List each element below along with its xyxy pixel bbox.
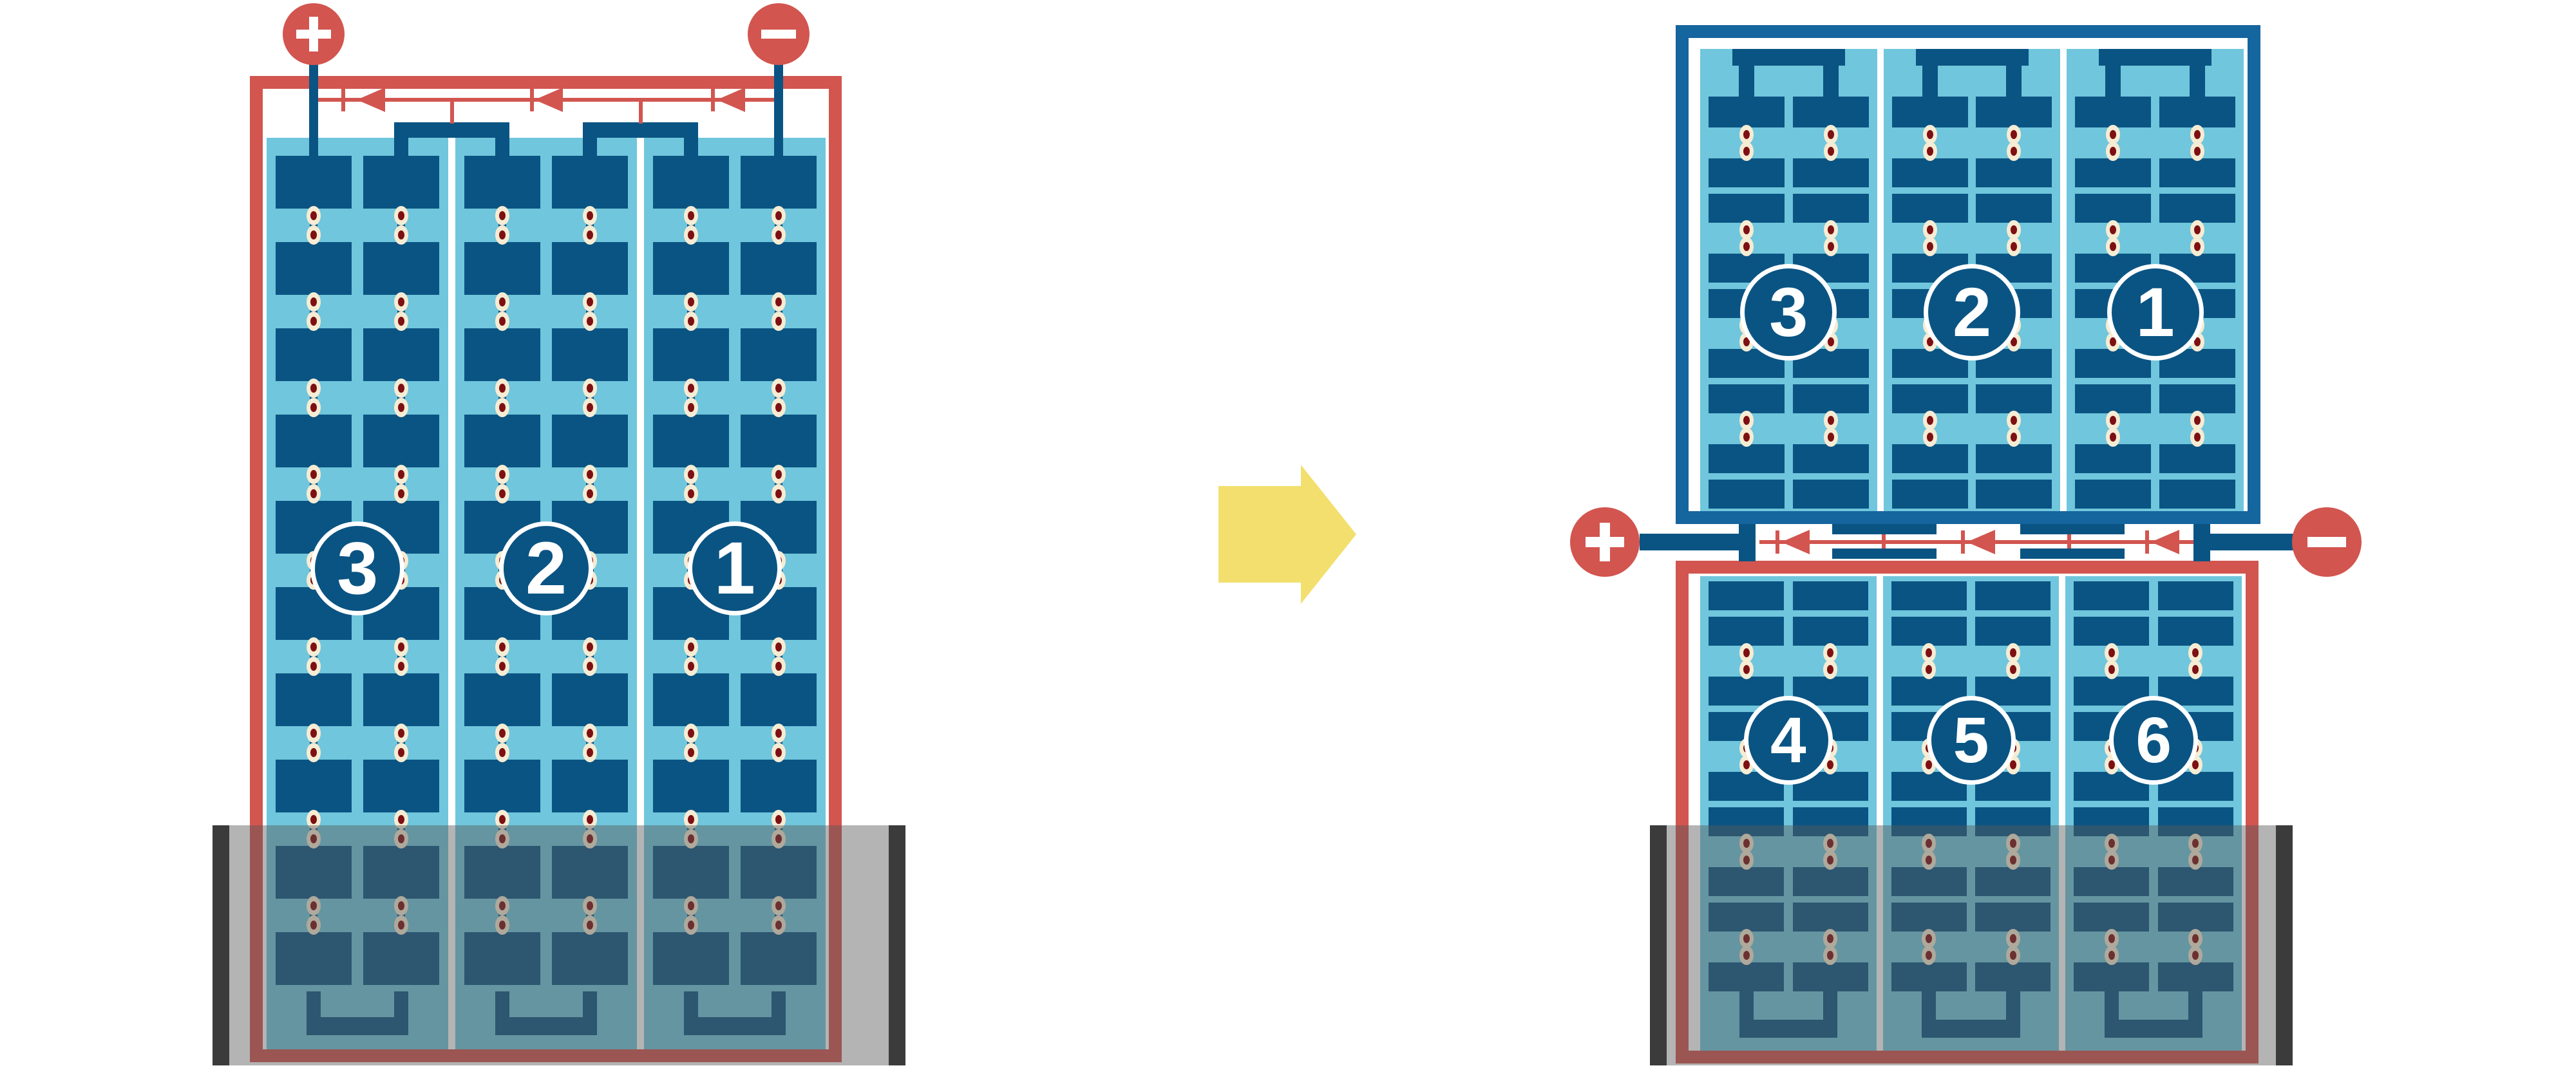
flow-tick <box>1961 530 1965 554</box>
unit-connector-tab <box>2020 524 2125 534</box>
terminal-post <box>774 62 783 189</box>
battery-frame <box>1676 25 2260 524</box>
plus-icon <box>1570 507 1640 577</box>
unit-connector-tab <box>1832 524 1937 534</box>
icon-bar-vertical <box>309 17 318 52</box>
holder-band <box>213 825 905 1065</box>
plus-icon <box>283 3 345 65</box>
terminal-lead <box>1640 534 1756 550</box>
holder-end-cap-left <box>213 825 229 1065</box>
holder-band <box>1650 825 2293 1065</box>
terminal-lead <box>2210 534 2298 550</box>
flow-tick <box>2145 530 2149 554</box>
diagram-canvas: 321 321 456 <box>0 0 2576 1068</box>
plus-terminal <box>283 3 345 65</box>
plus-terminal <box>1570 507 1640 577</box>
flow-arrowhead <box>2151 530 2179 554</box>
terminal-edge-bar <box>2193 524 2210 561</box>
minus-terminal <box>748 3 810 65</box>
icon-bar-vertical <box>1600 523 1610 561</box>
flow-tick <box>1776 530 1779 554</box>
minus-icon <box>2292 507 2362 577</box>
terminal-post <box>309 62 318 189</box>
holder-end-cap-right <box>889 825 905 1065</box>
unit-connector-tab <box>2020 548 2125 559</box>
icon-bar-horizontal <box>2307 537 2346 547</box>
minus-terminal <box>2292 507 2362 577</box>
icon-bar-horizontal <box>761 30 796 39</box>
flow-arrowhead <box>1967 530 1995 554</box>
minus-icon <box>748 3 810 65</box>
holder-end-cap-right <box>2276 825 2293 1065</box>
unit-connector-tab <box>1832 548 1937 559</box>
flow-arrowhead <box>1781 530 1810 554</box>
holder-end-cap-left <box>1650 825 1667 1065</box>
